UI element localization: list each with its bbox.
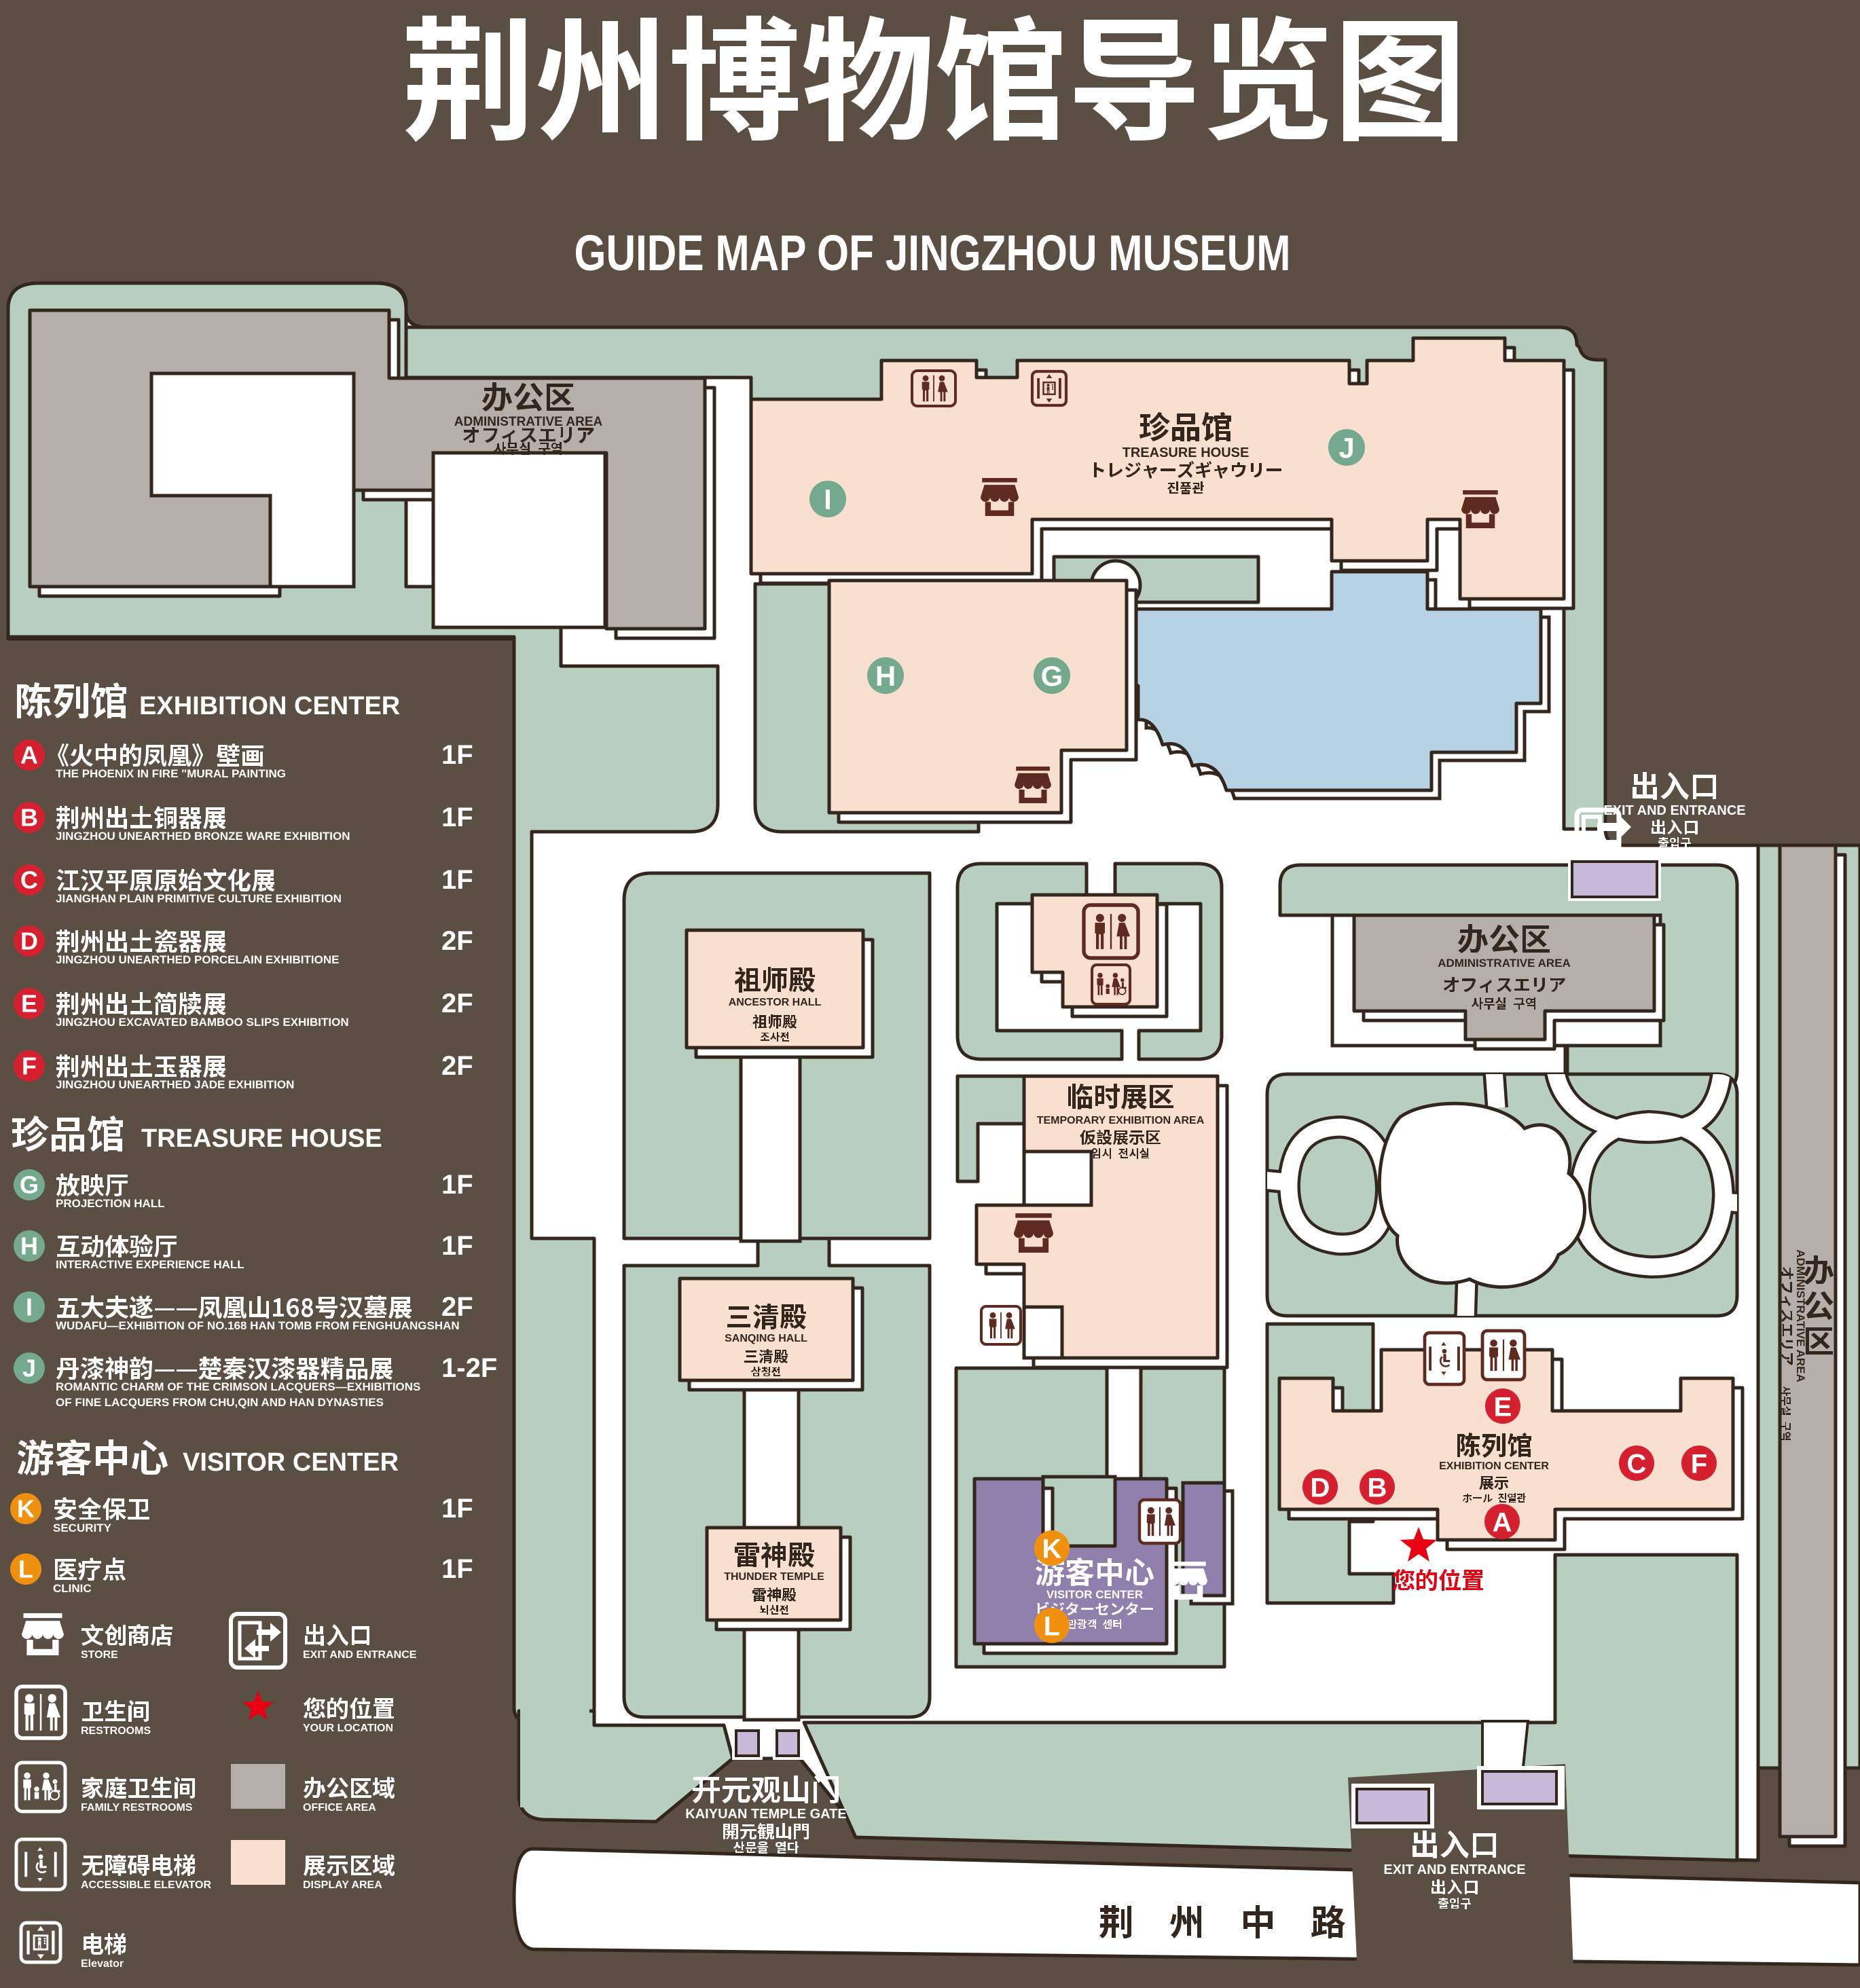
svg-text:C: C: [20, 866, 38, 894]
svg-text:THUNDER TEMPLE: THUNDER TEMPLE: [724, 1571, 824, 1583]
svg-text:A: A: [1493, 1507, 1512, 1537]
svg-text:E: E: [1494, 1392, 1512, 1422]
svg-text:C: C: [1627, 1449, 1647, 1479]
svg-text:G: G: [1041, 660, 1063, 692]
svg-text:RESTROOMS: RESTROOMS: [81, 1725, 151, 1737]
svg-text:H: H: [875, 660, 896, 692]
svg-text:1-2F: 1-2F: [441, 1353, 497, 1383]
svg-text:ADMINISTRATIVE AREA: ADMINISTRATIVE AREA: [454, 415, 603, 429]
svg-text:2F: 2F: [441, 926, 473, 956]
svg-text:TEMPORARY EXHIBITION AREA: TEMPORARY EXHIBITION AREA: [1037, 1115, 1205, 1126]
svg-text:2F: 2F: [441, 1292, 473, 1322]
svg-text:A: A: [20, 741, 38, 769]
svg-text:EXIT AND ENTRANCE: EXIT AND ENTRANCE: [1603, 803, 1745, 818]
svg-text:PROJECTION HALL: PROJECTION HALL: [56, 1197, 165, 1210]
svg-text:ANCESTOR HALL: ANCESTOR HALL: [729, 997, 822, 1008]
svg-text:YOUR LOCATION: YOUR LOCATION: [303, 1723, 393, 1734]
svg-text:SANQING HALL: SANQING HALL: [725, 1333, 807, 1344]
svg-text:GUIDE MAP OF JINGZHOU MUSEUM: GUIDE MAP OF JINGZHOU MUSEUM: [575, 225, 1291, 281]
svg-text:1F: 1F: [441, 1231, 473, 1261]
svg-text:EXHIBITION CENTER: EXHIBITION CENTER: [139, 692, 400, 720]
svg-text:F: F: [22, 1052, 37, 1080]
svg-text:OF FINE LACQUERS FROM CHU,QIN: OF FINE LACQUERS FROM CHU,QIN AND HAN DY…: [56, 1396, 384, 1409]
svg-text:D: D: [1311, 1473, 1330, 1503]
svg-text:TREASURE HOUSE: TREASURE HOUSE: [141, 1124, 382, 1153]
svg-text:DISPLAY AREA: DISPLAY AREA: [303, 1879, 382, 1891]
svg-text:E: E: [21, 990, 37, 1018]
svg-text:THE PHOENIX IN FIRE "MURAL PAI: THE PHOENIX IN FIRE "MURAL PAINTING: [56, 767, 286, 780]
svg-text:KAIYUAN TEMPLE GATE: KAIYUAN TEMPLE GATE: [685, 1807, 846, 1822]
svg-text:JINGZHOU UNEARTHED JADE EXHIBI: JINGZHOU UNEARTHED JADE EXHIBITION: [56, 1078, 294, 1091]
svg-text:1F: 1F: [441, 865, 473, 895]
svg-text:CLINIC: CLINIC: [53, 1582, 92, 1595]
svg-text:1F: 1F: [441, 740, 473, 770]
svg-text:H: H: [20, 1232, 38, 1260]
svg-text:JINGZHOU EXCAVATED BAMBOO SLIP: JINGZHOU EXCAVATED BAMBOO SLIPS EXHIBITI…: [56, 1016, 349, 1029]
svg-text:I: I: [26, 1293, 33, 1321]
svg-text:L: L: [1044, 1611, 1060, 1641]
svg-text:JINGZHOU UNEARTHED BRONZE WARE: JINGZHOU UNEARTHED BRONZE WARE EXHIBITIO…: [56, 830, 350, 843]
svg-text:2F: 2F: [441, 989, 473, 1018]
svg-text:K: K: [17, 1495, 35, 1523]
svg-text:ROMANTIC CHARM OF THE CRIMSON: ROMANTIC CHARM OF THE CRIMSON LACQUERS—E…: [56, 1380, 420, 1393]
svg-text:INTERACTIVE EXPERIENCE HALL: INTERACTIVE EXPERIENCE HALL: [56, 1258, 244, 1271]
svg-text:STORE: STORE: [81, 1649, 118, 1661]
svg-text:J: J: [22, 1355, 36, 1382]
svg-text:VISITOR CENTER: VISITOR CENTER: [1046, 1588, 1143, 1601]
svg-text:TREASURE HOUSE: TREASURE HOUSE: [1123, 445, 1250, 460]
svg-text:Elevator: Elevator: [81, 1958, 124, 1970]
svg-text:G: G: [20, 1171, 39, 1199]
svg-text:1F: 1F: [441, 1554, 473, 1584]
svg-text:ADMINISTRATIVE AREA: ADMINISTRATIVE AREA: [1794, 1249, 1807, 1382]
svg-text:L: L: [18, 1556, 33, 1583]
svg-text:OFFICE AREA: OFFICE AREA: [303, 1802, 376, 1814]
svg-text:K: K: [1042, 1534, 1062, 1564]
svg-text:JIANGHAN PLAIN PRIMITIVE CULTU: JIANGHAN PLAIN PRIMITIVE CULTURE EXHIBIT…: [56, 892, 342, 905]
svg-text:EXIT AND ENTRANCE: EXIT AND ENTRANCE: [303, 1649, 417, 1661]
svg-text:WUDAFU—EXHIBITION OF NO.168 HA: WUDAFU—EXHIBITION OF NO.168 HAN TOMB FRO…: [56, 1319, 460, 1332]
svg-text:EXHIBITION CENTER: EXHIBITION CENTER: [1439, 1460, 1549, 1472]
svg-text:ACCESSIBLE ELEVATOR: ACCESSIBLE ELEVATOR: [81, 1879, 211, 1891]
svg-text:VISITOR CENTER: VISITOR CENTER: [183, 1448, 399, 1477]
svg-text:F: F: [1691, 1449, 1707, 1479]
svg-text:SECURITY: SECURITY: [53, 1522, 112, 1534]
svg-text:EXIT AND ENTRANCE: EXIT AND ENTRANCE: [1383, 1862, 1525, 1877]
svg-text:1F: 1F: [441, 1494, 473, 1524]
svg-text:B: B: [1368, 1473, 1387, 1503]
svg-text:D: D: [20, 927, 38, 955]
svg-text:ADMINISTRATIVE AREA: ADMINISTRATIVE AREA: [1438, 957, 1571, 970]
svg-text:B: B: [20, 804, 38, 832]
svg-text:FAMILY RESTROOMS: FAMILY RESTROOMS: [81, 1802, 193, 1814]
svg-text:JINGZHOU UNEARTHED PORCELAIN E: JINGZHOU UNEARTHED PORCELAIN EXHIBITIONE: [56, 953, 339, 966]
svg-text:I: I: [824, 483, 832, 515]
svg-text:1F: 1F: [441, 803, 473, 832]
svg-text:2F: 2F: [441, 1051, 473, 1081]
svg-text:J: J: [1338, 432, 1354, 464]
svg-text:1F: 1F: [441, 1170, 473, 1200]
